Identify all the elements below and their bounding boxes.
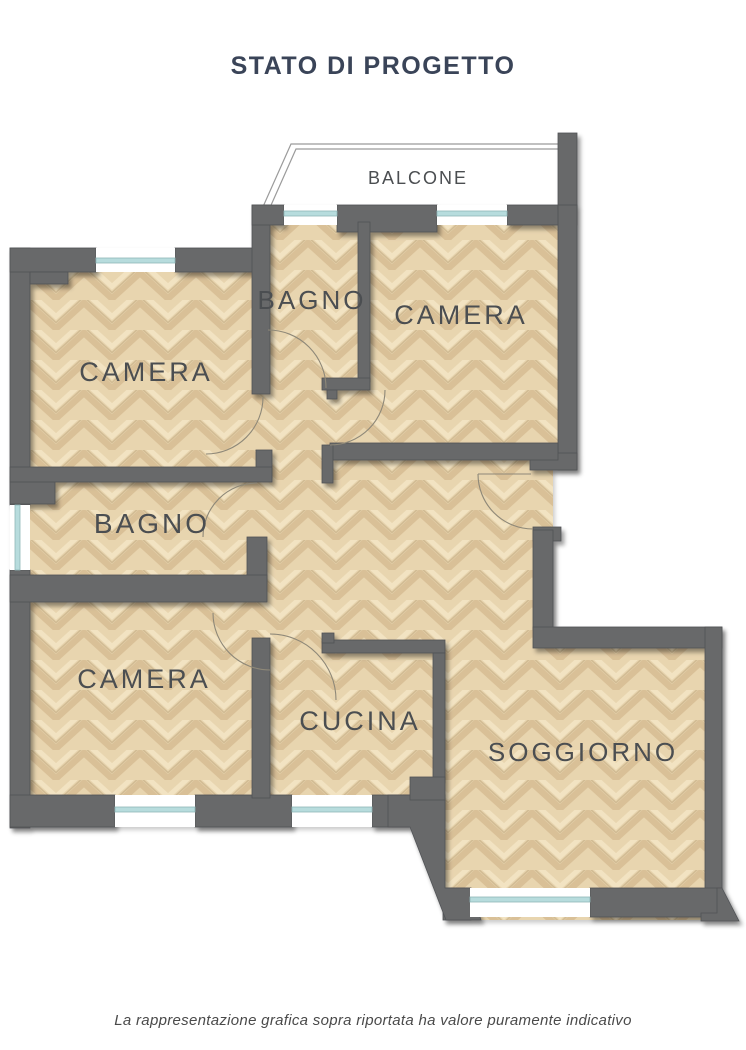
window — [437, 205, 507, 225]
wall-segment — [10, 795, 115, 827]
wall-segment — [252, 638, 270, 798]
wall-segment — [330, 443, 558, 460]
floor-plan-page: STATO DI PROGETTO — [0, 0, 746, 1050]
window — [292, 795, 372, 827]
wall-segment — [10, 570, 30, 828]
floor-plan: BALCONE CAMERA BAGNO CAMERA BAGNO CAMERA… — [0, 0, 746, 1050]
wall-segment — [533, 627, 722, 648]
room-label-camera-top-right: CAMERA — [394, 300, 528, 330]
wall-segment — [410, 777, 445, 800]
wall-segment — [252, 205, 284, 225]
wall-segment — [30, 272, 68, 284]
wall-segment — [433, 653, 445, 783]
wall-segment — [322, 445, 333, 483]
wall-segment — [322, 640, 445, 653]
room-label-balcone: BALCONE — [368, 168, 468, 188]
room-label-cucina: CUCINA — [299, 706, 421, 736]
room-label-bagno-top: BAGNO — [258, 285, 367, 315]
wall-segment — [558, 205, 577, 470]
wall-segment — [10, 248, 30, 505]
window — [284, 205, 337, 225]
wall-segment — [10, 575, 267, 602]
room-label-soggiorno: SOGGIORNO — [488, 737, 678, 767]
room-label-camera-bottom-left: CAMERA — [77, 664, 211, 694]
window — [470, 888, 590, 917]
wall-segment — [558, 133, 577, 209]
wall-segment — [337, 205, 437, 232]
window — [115, 795, 195, 827]
window — [96, 248, 175, 272]
room-label-camera-top-left: CAMERA — [79, 357, 213, 387]
disclaimer-text: La rappresentazione grafica sopra riport… — [0, 1012, 746, 1029]
room-label-bagno-middle: BAGNO — [94, 508, 210, 539]
wall-segment — [705, 627, 722, 893]
window — [10, 505, 30, 570]
wall-segment — [175, 248, 253, 272]
wall-segment — [10, 467, 272, 482]
wall-segment — [10, 248, 96, 272]
wall-segment — [322, 378, 370, 390]
wall-segment — [327, 390, 337, 399]
wall-segment — [533, 530, 553, 630]
wall-segment — [322, 633, 334, 643]
wall-segment — [195, 795, 292, 827]
